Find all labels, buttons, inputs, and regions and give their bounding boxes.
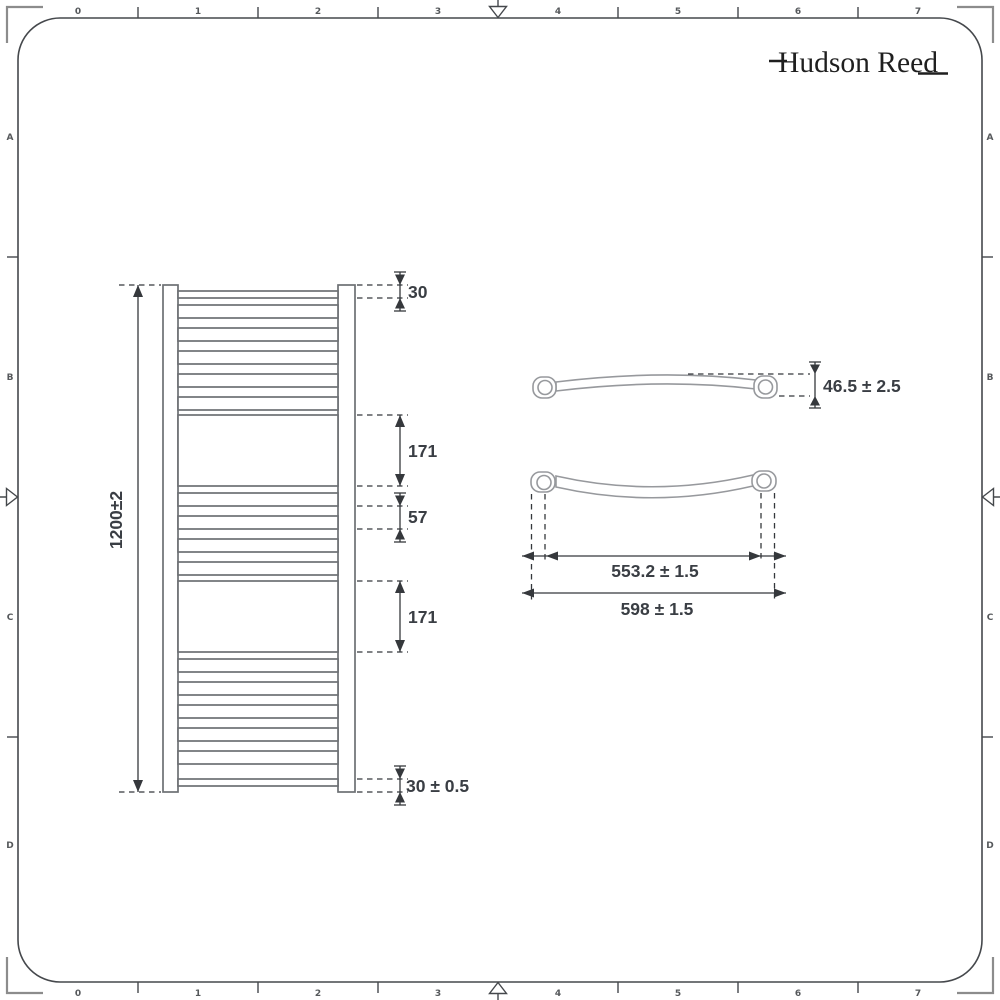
row-letter: D	[986, 841, 993, 851]
dim-label-bow-depth: 46.5 ± 2.5	[823, 376, 901, 396]
bracket-hole	[759, 380, 773, 394]
towel-bar	[178, 728, 338, 741]
towel-bar	[178, 328, 338, 341]
towel-bar	[178, 516, 338, 529]
left-row-labels: A B C D	[0, 133, 18, 851]
ruler-number: 3	[435, 989, 441, 999]
bottom-ruler: 0 1 2 3 4 5 6 7	[75, 983, 921, 1000]
flat-panel-section	[178, 415, 338, 486]
row-letter: C	[7, 613, 14, 623]
towel-bar	[178, 351, 338, 364]
towel-bar	[178, 493, 338, 506]
center-mark-arrow-icon	[490, 7, 507, 18]
flat-panel-section	[178, 581, 338, 652]
dim-label-centres: 553.2 ± 1.5	[611, 561, 699, 581]
row-letter: A	[987, 133, 994, 143]
ruler-number: 0	[75, 7, 81, 17]
bracket-hole	[538, 381, 552, 395]
left-rail	[163, 285, 178, 792]
bracket-hole	[537, 476, 551, 490]
right-rail	[338, 285, 355, 792]
ruler-number: 6	[795, 7, 801, 17]
towel-bar	[178, 659, 338, 672]
towel-bar	[178, 705, 338, 718]
top-ruler: 0 1 2 3 4 5 6 7	[75, 0, 921, 18]
dim-label-bar-pitch: 57	[408, 507, 427, 527]
top-crossbar	[178, 291, 338, 298]
ruler-number: 2	[315, 989, 321, 999]
dim-label-top-offset: 30	[408, 282, 428, 302]
towel-bar	[178, 397, 338, 410]
ruler-number: 4	[555, 7, 561, 17]
brand-logo: Hudson Reed	[769, 46, 948, 79]
dim-label-bottom-offset: 30 ± 0.5	[406, 776, 469, 796]
ruler-number: 5	[675, 7, 681, 17]
technical-drawing-svg: 0 1 2 3 4 5 6 7 0 1 2 3 4 5 6 7	[0, 0, 1000, 1000]
front-view-towel-rail	[163, 285, 355, 792]
dim-label-lower-section: 171	[408, 607, 437, 627]
ruler-number: 1	[195, 7, 201, 17]
dim-label-overall-width: 598 ± 1.5	[621, 599, 694, 619]
right-row-labels: A B C D	[983, 133, 1000, 851]
ruler-number: 2	[315, 7, 321, 17]
row-letter: D	[6, 841, 13, 851]
ruler-number: 1	[195, 989, 201, 999]
bracket-hole	[757, 474, 771, 488]
towel-bar	[178, 751, 338, 764]
row-letter: A	[7, 133, 14, 143]
towel-bar	[178, 374, 338, 387]
towel-bar	[178, 539, 338, 552]
ruler-number: 3	[435, 7, 441, 17]
ruler-number: 7	[915, 989, 921, 999]
towel-bar	[178, 682, 338, 695]
row-letter: C	[987, 613, 994, 623]
center-mark-arrow-icon	[490, 983, 507, 994]
row-letter: B	[987, 373, 994, 383]
dim-label-upper-section: 171	[408, 441, 437, 461]
row-letter: B	[7, 373, 14, 383]
logo-text: Hudson Reed	[778, 46, 938, 79]
sheet-frame: 0 1 2 3 4 5 6 7 0 1 2 3 4 5 6 7	[0, 0, 1000, 1000]
ruler-number: 4	[555, 989, 561, 999]
drawing-sheet: 0 1 2 3 4 5 6 7 0 1 2 3 4 5 6 7	[0, 0, 1000, 1000]
center-mark-arrow-icon	[7, 489, 18, 506]
bottom-crossbar	[178, 779, 338, 786]
ruler-number: 6	[795, 989, 801, 999]
towel-bar	[178, 562, 338, 575]
dim-label-height: 1200±2	[106, 491, 126, 550]
ruler-number: 5	[675, 989, 681, 999]
towel-bar	[178, 305, 338, 318]
ruler-number: 7	[915, 7, 921, 17]
center-mark-arrow-icon	[983, 489, 994, 506]
ruler-number: 0	[75, 989, 81, 999]
